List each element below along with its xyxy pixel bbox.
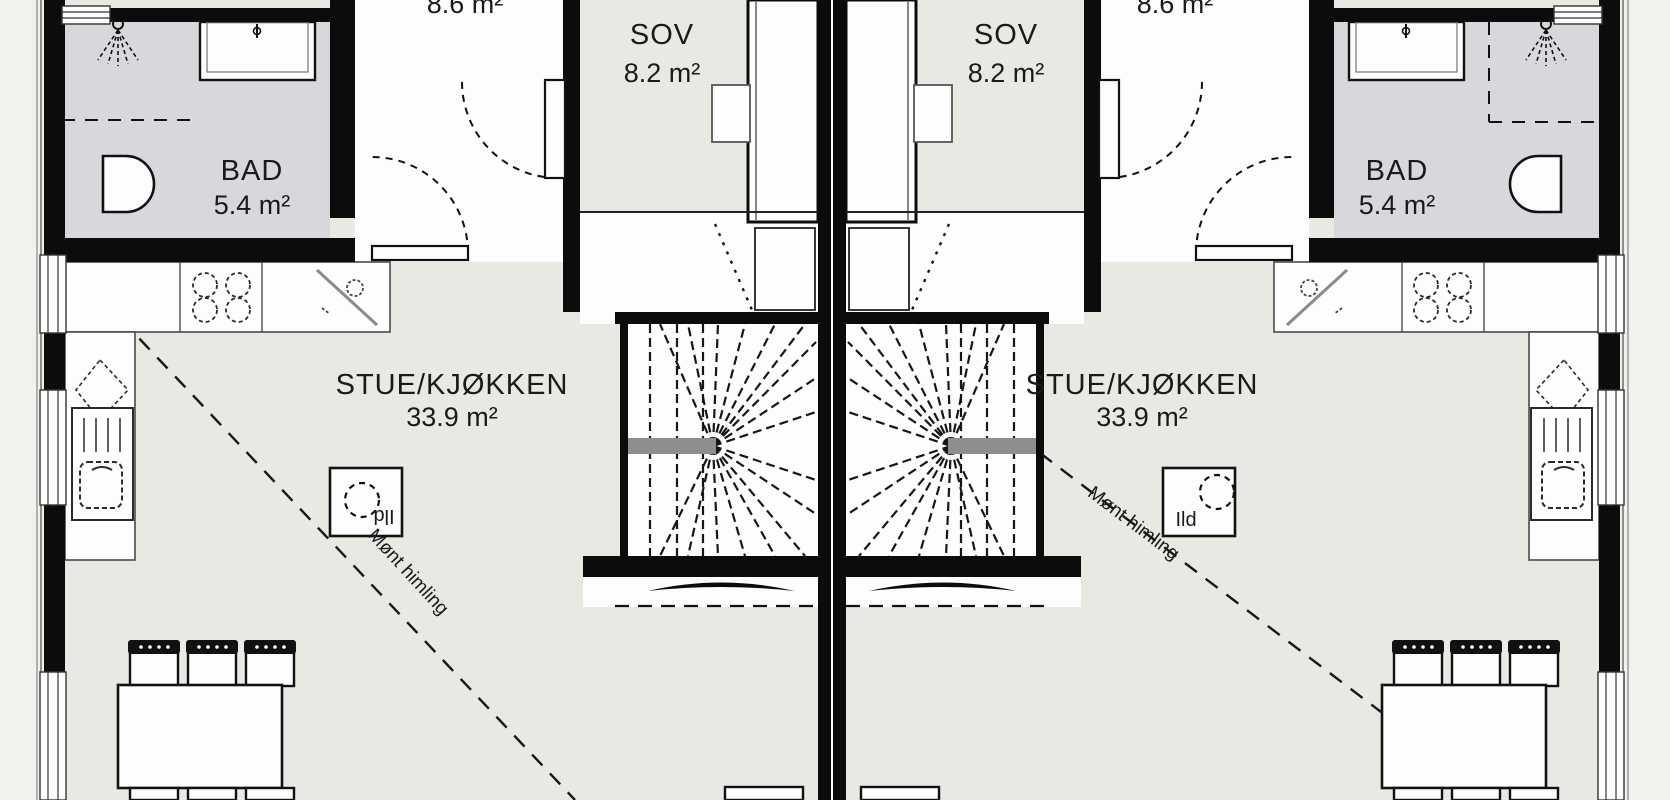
window	[1598, 255, 1624, 333]
floor-plan: Ild Ild	[0, 0, 1670, 800]
right-fireplace: Ild	[1163, 468, 1235, 536]
toilet-icon	[1510, 156, 1561, 212]
right-bedroom-name: SOV	[974, 19, 1038, 51]
right-bathroom-area: 5.4 m²	[1359, 190, 1436, 220]
right-hall-floor	[1101, 0, 1309, 262]
chair	[128, 640, 180, 686]
vanity-sink	[200, 22, 315, 80]
left-dining-set	[118, 640, 296, 800]
party-wall-left	[818, 0, 831, 800]
left-counter-top	[65, 262, 390, 332]
right-bed	[846, 0, 916, 222]
right-handrail	[948, 438, 1036, 454]
window	[1598, 390, 1624, 505]
right-dining-set	[1382, 640, 1560, 800]
left-fireplace: Ild	[330, 468, 402, 536]
right-landing-closet	[849, 228, 909, 310]
right-bedroom-area: 8.2 m²	[968, 58, 1045, 88]
dining-table	[118, 685, 282, 788]
left-hall-area-cropped: 8.6 m²	[427, 0, 504, 19]
chair	[1508, 640, 1560, 686]
right-living-name: STUE/KJØKKEN	[1026, 369, 1259, 401]
window	[40, 672, 66, 800]
left-handrail	[628, 438, 716, 454]
left-bathroom-area: 5.4 m²	[214, 190, 291, 220]
chairs-top	[128, 640, 296, 686]
left-nightstand	[712, 85, 750, 142]
right-counter-top	[1274, 262, 1599, 332]
party-wall-right	[833, 0, 846, 800]
left-bedroom-name: SOV	[630, 19, 694, 51]
toilet-icon	[103, 156, 154, 212]
window	[40, 390, 66, 505]
right-below-stairs	[846, 577, 1081, 607]
left-bed	[748, 0, 818, 222]
dining-table	[1382, 685, 1546, 788]
floorplan-svg: Ild Ild	[0, 0, 1670, 800]
right-bathroom-name: BAD	[1366, 155, 1429, 187]
left-bedroom-area: 8.2 m²	[624, 58, 701, 88]
left-below-stairs	[583, 577, 818, 607]
chairs-bottom-partial	[1394, 788, 1558, 800]
left-living-name: STUE/KJØKKEN	[336, 369, 569, 401]
right-nightstand	[914, 85, 952, 142]
window	[1554, 6, 1602, 24]
left-landing-closet	[755, 228, 815, 310]
fireplace-label: Ild	[1175, 509, 1196, 531]
left-living-area: 33.9 m²	[406, 402, 498, 432]
window	[1598, 672, 1624, 800]
right-living-area: 33.9 m²	[1096, 402, 1188, 432]
left-bathroom-name: BAD	[221, 155, 284, 187]
right-kitchen-sink-unit	[1531, 408, 1592, 520]
chair	[1450, 640, 1502, 686]
right-hall-area-cropped: 8.6 m²	[1137, 0, 1214, 19]
window	[62, 6, 110, 24]
left-hall-floor	[355, 0, 563, 262]
chair	[186, 640, 238, 686]
chair	[1392, 640, 1444, 686]
fireplace-label: Ild	[373, 505, 394, 527]
chairs-top	[1392, 640, 1560, 686]
chairs-bottom-partial	[130, 788, 294, 800]
chair	[244, 640, 296, 686]
left-kitchen-sink-unit	[72, 408, 133, 520]
window	[40, 255, 66, 333]
vanity-sink	[1349, 22, 1464, 80]
